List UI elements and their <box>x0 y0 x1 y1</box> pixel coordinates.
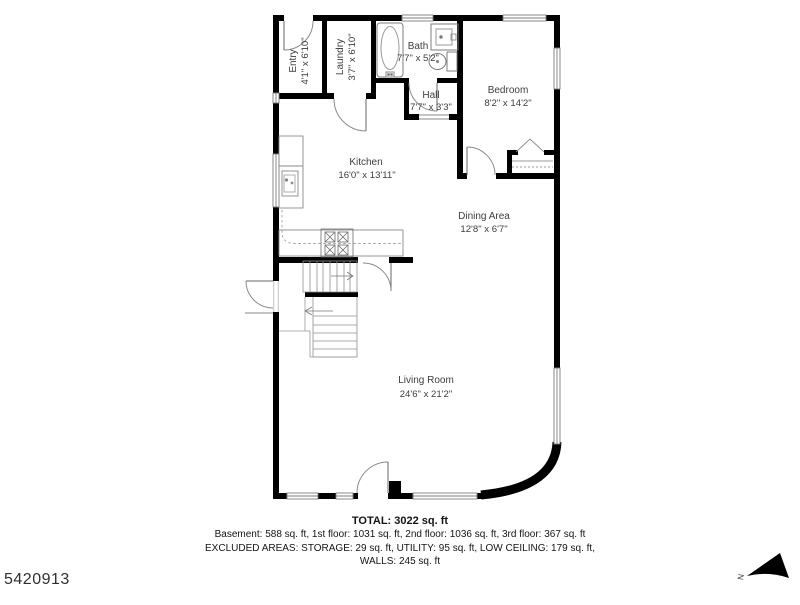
window-kitchen-left <box>273 154 279 207</box>
window-bedroom-right <box>554 48 560 89</box>
room-label-kitchen: Kitchen <box>349 157 382 168</box>
opening-hall <box>419 115 449 119</box>
bathtub <box>377 23 403 77</box>
bath-sink <box>431 24 458 50</box>
window-living-bottom-2 <box>336 493 353 499</box>
room-dims-living: 24'6" x 21'2" <box>400 389 453 400</box>
summary-total: TOTAL: 3022 sq. ft <box>0 515 800 528</box>
door-laundry-kitchen <box>334 99 366 131</box>
door-stairs <box>363 263 391 291</box>
window-entry-left <box>273 93 279 103</box>
room-label-laundry: Laundry <box>335 39 346 75</box>
window-living-bottom-1 <box>287 493 318 499</box>
summary-walls: WALLS: 245 sq. ft <box>0 555 800 568</box>
room-dims-laundry: 3'7" x 6'10" <box>347 33 358 80</box>
summary-excluded: EXCLUDED AREAS: STORAGE: 29 sq. ft, UTIL… <box>0 542 800 555</box>
room-dims-bedroom: 8'2" x 14'2" <box>484 98 531 109</box>
room-dims-kitchen: 16'0" x 13'11" <box>338 170 395 181</box>
floor-plan-canvas: Entry 4'1" x 6'10" Laundry 3'7" x 6'10" … <box>0 0 800 600</box>
room-dims-dining: 12'8" x 6'7" <box>460 224 507 235</box>
room-dims-hall: 7'7" x 3'3" <box>410 102 452 113</box>
summary-floors: Basement: 588 sq. ft, 1st floor: 1031 sq… <box>0 528 800 541</box>
stairs-lower <box>279 297 357 357</box>
room-label-hall: Hall <box>422 90 439 101</box>
door-bedroom <box>467 147 495 175</box>
window-living-bottom-3 <box>413 493 477 499</box>
hanging-rod-icon <box>516 139 544 152</box>
stairs-upper <box>303 261 357 292</box>
window-bath-top <box>402 15 433 21</box>
kitchen-counter-left <box>279 136 303 208</box>
listing-id: 5420913 <box>4 571 70 589</box>
stove <box>321 229 353 257</box>
room-label-entry: Entry <box>288 49 299 72</box>
room-label-bath: Bath <box>408 41 429 52</box>
window-living-right <box>554 368 560 444</box>
room-dims-entry: 4'1" x 6'10" <box>300 37 311 84</box>
area-summary: TOTAL: 3022 sq. ft Basement: 588 sq. ft,… <box>0 515 800 569</box>
kitchen-counter-bottom <box>279 210 403 257</box>
room-label-dining: Dining Area <box>458 211 510 222</box>
room-dims-bath: 7'7" x 5'2" <box>397 53 439 64</box>
room-label-living: Living Room <box>398 375 454 386</box>
window-bedroom-top <box>503 15 546 21</box>
door-living-bottom <box>357 462 388 493</box>
north-letter: N <box>736 573 746 580</box>
curved-corner-wall <box>481 442 557 495</box>
floor-plan-page: Entry 4'1" x 6'10" Laundry 3'7" x 6'10" … <box>0 0 800 600</box>
door-side-exterior <box>245 281 278 313</box>
room-label-bedroom: Bedroom <box>488 85 529 96</box>
